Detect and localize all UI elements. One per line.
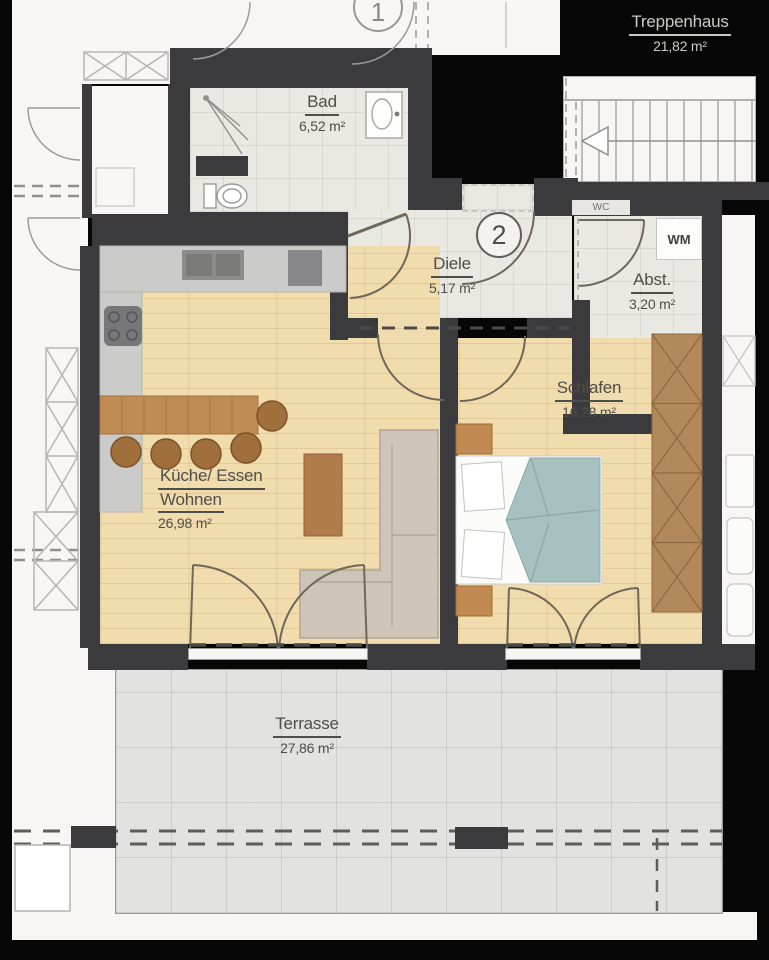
room-name: Treppenhaus <box>629 12 730 36</box>
wall <box>440 318 458 648</box>
washing-machine-symbol: WM <box>656 218 702 260</box>
wall <box>408 178 462 210</box>
room-name: Schlafen <box>555 378 624 402</box>
exterior-bottom-band <box>12 912 757 940</box>
neighbor-room-right <box>722 215 755 655</box>
wall <box>540 182 769 200</box>
room-label-terrasse: Terrasse 27,86 m² <box>252 714 362 757</box>
room-name: Diele <box>431 254 473 278</box>
wall <box>196 156 248 176</box>
room-area: 27,86 m² <box>252 740 362 757</box>
room-label-abst: Abst. 3,20 m² <box>600 270 704 313</box>
room-name: Terrasse <box>273 714 341 738</box>
neighbor-room-top-left <box>92 86 168 216</box>
wall <box>82 84 92 218</box>
wall <box>640 644 755 670</box>
room-name: Bad <box>305 92 339 116</box>
terrasse-floor <box>116 670 722 913</box>
room-label-treppenhaus: Treppenhaus 21,82 m² <box>596 12 764 55</box>
wall <box>348 318 378 338</box>
exterior-left-strip <box>12 0 88 612</box>
room-area: 3,20 m² <box>600 296 704 313</box>
unit-number-badge: 2 <box>476 212 522 258</box>
room-kueche-floor <box>100 246 440 644</box>
room-area: 21,82 m² <box>596 38 764 55</box>
stair-landing <box>563 76 756 100</box>
exterior-top-patch <box>82 0 170 84</box>
room-label-schlafen: Schlafen 16,28 m² <box>534 378 644 421</box>
wall <box>170 48 432 88</box>
room-label-bad: Bad 6,52 m² <box>270 92 374 135</box>
wall <box>408 48 432 180</box>
room-name: Küche/ Essen <box>158 466 265 490</box>
floor-plan: Treppenhaus 21,82 m² Bad 6,52 m² Diele 5… <box>0 0 769 960</box>
french-door-threshold-living <box>188 648 368 660</box>
room-area: 16,28 m² <box>534 404 644 421</box>
room-area: 6,52 m² <box>270 118 374 135</box>
wall <box>88 644 188 670</box>
room-area: 26,98 m² <box>158 515 308 532</box>
wall <box>168 84 190 228</box>
wc-label: WC <box>572 200 630 215</box>
wall <box>100 228 330 246</box>
room-label-diele: Diele 5,17 m² <box>400 254 504 297</box>
french-door-threshold-bedroom <box>505 648 641 660</box>
wall <box>527 318 574 338</box>
stair-treads-area <box>563 100 756 182</box>
room-area: 5,17 m² <box>400 280 504 297</box>
wall <box>367 644 507 670</box>
room-label-kueche: Küche/ Essen Wohnen 26,98 m² <box>158 466 308 533</box>
room-name-line2: Wohnen <box>158 490 224 514</box>
room-name: Abst. <box>631 270 673 294</box>
entrance-doormat <box>462 184 534 212</box>
wall <box>80 246 100 648</box>
wall <box>330 212 348 340</box>
wall <box>702 198 722 670</box>
